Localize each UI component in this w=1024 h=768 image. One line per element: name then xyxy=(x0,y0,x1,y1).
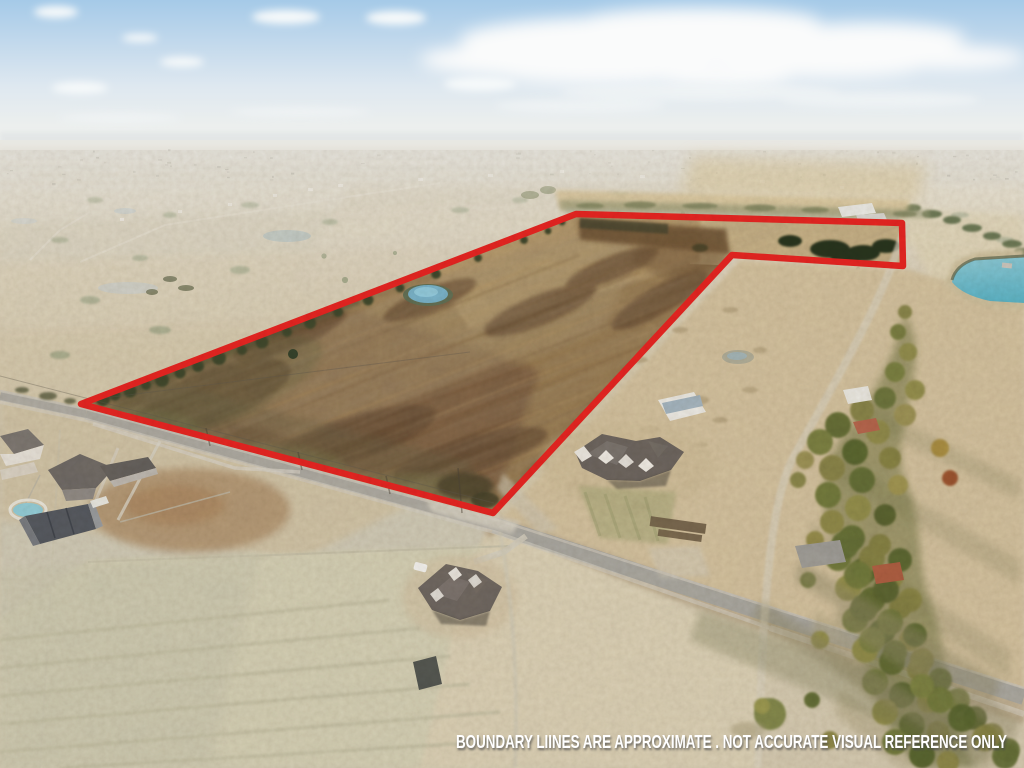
svg-text:BOUNDARY LIINES ARE APPROXIMAT: BOUNDARY LIINES ARE APPROXIMATE . NOT AC… xyxy=(456,732,1007,752)
